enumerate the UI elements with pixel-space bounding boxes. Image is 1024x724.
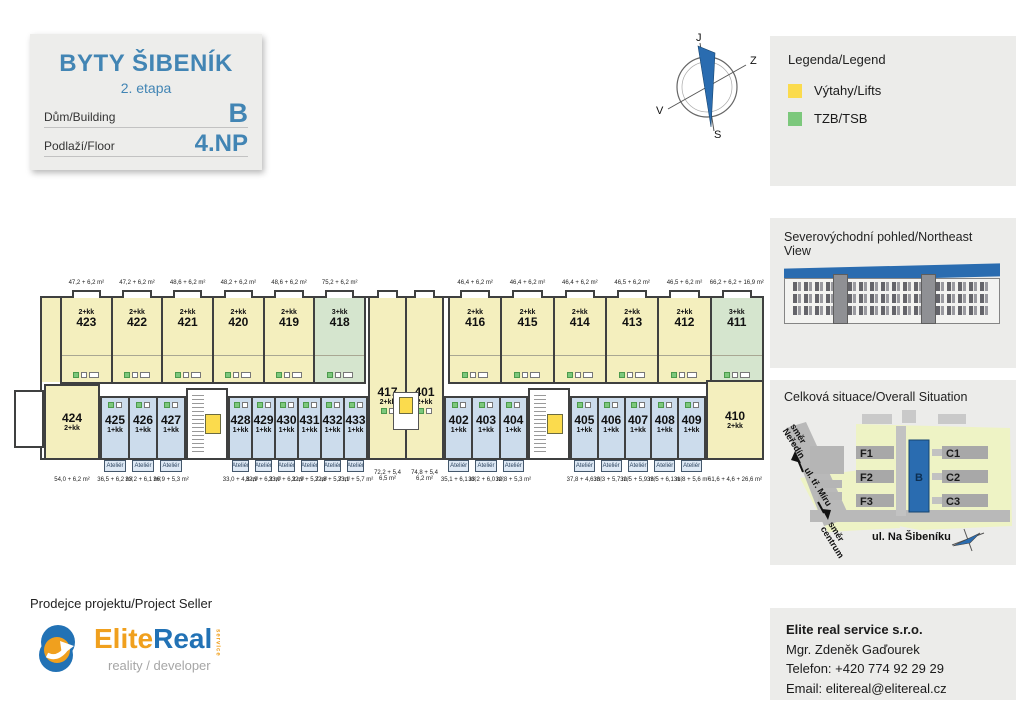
unit-number: 405 (574, 414, 594, 427)
unit-area: 74,8 + 5,46,2 m² (411, 470, 438, 482)
page-title: BYTY ŠIBENÍK (44, 50, 248, 78)
unit-414: 46,4 + 6,2 m²2+kk414 (555, 298, 607, 382)
unit-area: 75,2 + 6,2 m² (322, 280, 358, 286)
unit-fixtures (659, 372, 709, 378)
unit-area: 46,5 + 6,2 m² (614, 280, 650, 286)
stairwell-east (528, 388, 570, 460)
window-row (793, 294, 991, 303)
unit-fixtures (473, 402, 498, 408)
unit-type: 1+kk (107, 427, 123, 434)
contact-company: Elite real service s.r.o. (786, 620, 1000, 640)
unit-atelier-balcony: Ateliér (278, 460, 296, 472)
unit-405: 4051+kkAteliér37,8 + 4,6 m² (572, 398, 599, 458)
unit-413: 46,5 + 6,2 m²2+kk413 (607, 298, 659, 382)
unit-417: 4172+kk72,2 + 5,46,5 m² (370, 298, 407, 458)
contact-person: Mgr. Zdeněk Gaďourek (786, 640, 1000, 660)
stair-tower (833, 274, 848, 324)
unit-type: 1+kk (505, 427, 521, 434)
unit-type: 1+kk (302, 427, 318, 434)
unit-area: 36,9 + 5,3 m² (153, 477, 189, 483)
unit-426: 4261+kkAteliér33,2 + 6,1 m² (130, 398, 158, 458)
stairwell-west (186, 388, 228, 460)
unit-404: 4041+kkAteliér32,8 + 5,3 m² (501, 398, 526, 458)
unit-421: 48,6 + 6,2 m²2+kk421 (163, 298, 214, 382)
unit-balcony (414, 290, 435, 298)
tzb-swatch (788, 112, 802, 126)
unit-balcony (325, 290, 354, 298)
building-c2-label: C2 (946, 472, 960, 484)
unit-fixtures (163, 372, 212, 378)
unit-432: 4321+kkAteliér32,8 + 5,7 m² (322, 398, 345, 458)
unit-type: 1+kk (603, 427, 619, 434)
building-c3-label: C3 (946, 496, 960, 508)
unit-area: 54,0 + 6,2 m² (54, 477, 90, 483)
compass-icon: J Z V S (652, 30, 767, 138)
unit-number: 425 (105, 414, 125, 427)
unit-433: 4331+kkAteliér33,1 + 5,7 m² (345, 398, 366, 458)
building-f3-label: F3 (860, 496, 873, 508)
unit-atelier-balcony: Ateliér (347, 460, 365, 472)
unit-402: 4021+kkAteliér35,1 + 6,1 m² (446, 398, 473, 458)
unit-atelier-balcony: Ateliér (448, 460, 469, 472)
legend: Legenda/Legend Výtahy/Lifts TZB/TSB (770, 36, 1016, 186)
unit-411: 66,2 + 6,2 + 16,9 m²3+kk411 (712, 298, 762, 382)
compass-label-top: J (696, 32, 702, 44)
situation-panel: Celková situace/Overall Situation F1 F2 … (770, 380, 1016, 565)
lift-box (205, 414, 221, 434)
unit-type: 2+kk (64, 425, 80, 432)
unit-fixtures (652, 402, 677, 408)
unit-fixtures (501, 402, 526, 408)
unit-fixtures (446, 402, 471, 408)
unit-number: 428 (230, 414, 250, 427)
unit-atelier-balcony: Ateliér (132, 460, 154, 472)
unit-number: 414 (570, 316, 590, 329)
building-value: B (229, 100, 249, 127)
mid-stair-core (393, 392, 419, 430)
unit-number: 432 (322, 414, 342, 427)
seller-block: Prodejce projektu/Project Seller Elite R… (30, 596, 290, 706)
unit-fixtures (315, 372, 364, 378)
unit-row-bottom-a: 4251+kkAteliér36,5 + 6,2 m²4261+kkAtelié… (100, 396, 186, 460)
unit-area: 46,4 + 6,2 m² (562, 280, 598, 286)
building-b-label: B (915, 472, 923, 484)
lift-box (547, 414, 563, 434)
northeast-view-title: Severovýchodní pohled/Northeast View (784, 230, 1002, 258)
unit-area: 47,2 + 6,2 m² (69, 280, 105, 286)
unit-429: 4291+kkAteliér32,9 + 6,2 m² (253, 398, 276, 458)
unit-number: 415 (517, 316, 537, 329)
unit-fixtures (230, 402, 251, 408)
unit-409: 4091+kkAteliér31,8 + 5,6 m² (679, 398, 704, 458)
unit-area: 46,4 + 6,2 m² (510, 280, 546, 286)
stairs (192, 395, 204, 453)
unit-row-bottom-b: 4281+kkAteliér33,0 + 4,6 m²4291+kkAtelié… (228, 396, 368, 460)
unit-406: 4061+kkAteliér33,3 + 5,7 m² (599, 398, 626, 458)
unit-fixtures (253, 402, 274, 408)
title-box: BYTY ŠIBENÍK 2. etapa Dům/Building B Pod… (30, 34, 262, 170)
page-subtitle: 2. etapa (44, 80, 248, 96)
unit-area: 47,2 + 6,2 m² (119, 280, 155, 286)
unit-balcony (565, 290, 595, 298)
unit-fixtures (607, 372, 657, 378)
building-f2-label: F2 (860, 472, 873, 484)
unit-type: 1+kk (657, 427, 673, 434)
unit-area: 61,6 + 4,6 + 26,6 m² (708, 477, 762, 483)
unit-fixtures (102, 402, 128, 408)
unit-atelier-balcony: Ateliér (301, 460, 319, 472)
unit-atelier-balcony: Ateliér (601, 460, 622, 472)
unit-row-top-left: 47,2 + 6,2 m²2+kk42347,2 + 6,2 m²2+kk422… (60, 296, 366, 384)
unit-number: 420 (228, 316, 248, 329)
unit-area: 72,2 + 5,46,5 m² (374, 470, 401, 482)
unit-atelier-balcony: Ateliér (232, 460, 250, 472)
unit-fixtures (299, 402, 320, 408)
unit-row-bottom-c: 4021+kkAteliér35,1 + 6,1 m²4031+kkAtelié… (444, 396, 528, 460)
unit-fixtures (572, 402, 597, 408)
unit-balcony (669, 290, 699, 298)
unit-431: 4311+kkAteliér32,9 + 5,7 m² (299, 398, 322, 458)
unit-balcony (173, 290, 202, 298)
floor-row: Podlaží/Floor 4.NP (44, 132, 248, 157)
unit-type: 1+kk (478, 427, 494, 434)
unit-number: 402 (449, 414, 469, 427)
building-f1-label: F1 (860, 448, 873, 460)
unit-balcony (722, 290, 752, 298)
brand-real: Real (153, 625, 212, 653)
stairs (534, 395, 546, 453)
unit-number: 404 (503, 414, 523, 427)
unit-area: 66,2 + 6,2 + 16,9 m² (710, 280, 764, 286)
unit-atelier-balcony: Ateliér (654, 460, 675, 472)
unit-fixtures (679, 402, 704, 408)
unit-fixtures (130, 402, 156, 408)
unit-atelier-balcony: Ateliér (681, 460, 702, 472)
unit-430: 4301+kkAteliér33,0 + 6,2 m² (276, 398, 299, 458)
situation-map: F1 F2 F3 B C1 C2 C3 směr Neř (770, 408, 1016, 560)
unit-balcony (122, 290, 151, 298)
site-compass-icon (952, 529, 984, 551)
unit-area: 48,6 + 6,2 m² (271, 280, 307, 286)
contact-phone: Telefon: +420 774 92 29 29 (786, 659, 1000, 679)
unit-type: 2+kk (727, 423, 743, 430)
unit-area: 46,4 + 6,2 m² (457, 280, 493, 286)
unit-type: 1+kk (163, 427, 179, 434)
unit-area: 33,1 + 5,7 m² (338, 477, 374, 483)
unit-fixtures (276, 402, 297, 408)
lift-swatch (788, 84, 802, 98)
unit-number: 430 (276, 414, 296, 427)
brand-wordmark: Elite Real service (94, 625, 220, 657)
unit-408: 4081+kkAteliér33,5 + 6,1 m² (652, 398, 679, 458)
unit-418: 75,2 + 6,2 m²3+kk418 (315, 298, 364, 382)
unit-balcony (460, 290, 490, 298)
building-elevation (784, 266, 1000, 324)
unit-fixtures (712, 372, 762, 378)
unit-427: 4271+kkAteliér36,9 + 5,3 m² (158, 398, 184, 458)
unit-fixtures (502, 372, 552, 378)
elevation-facade (784, 278, 1000, 324)
unit-balcony (274, 290, 303, 298)
unit-balcony (224, 290, 253, 298)
unit-fixtures (626, 402, 651, 408)
unit-atelier-balcony: Ateliér (574, 460, 595, 472)
contact-panel: Elite real service s.r.o. Mgr. Zdeněk Ga… (770, 608, 1016, 700)
seller-label: Prodejce projektu/Project Seller (30, 596, 290, 611)
unit-atelier-balcony: Ateliér (104, 460, 126, 472)
unit-number: 403 (476, 414, 496, 427)
elitereal-logo-icon (30, 621, 86, 677)
unit-fixtures (113, 372, 162, 378)
legend-title: Legenda/Legend (788, 52, 998, 67)
unit-number: 422 (127, 316, 147, 329)
unit-atelier-balcony: Ateliér (475, 460, 496, 472)
unit-area: 48,6 + 6,2 m² (170, 280, 206, 286)
building-row: Dům/Building B (44, 100, 248, 128)
unit-type: 1+kk (279, 427, 295, 434)
unit-number: 429 (253, 414, 273, 427)
unit-area: 46,5 + 6,2 m² (667, 280, 703, 286)
unit-type: 1+kk (256, 427, 272, 434)
northeast-view-panel: Severovýchodní pohled/Northeast View (770, 218, 1016, 368)
floorplan-sheet: BYTY ŠIBENÍK 2. etapa Dům/Building B Pod… (0, 0, 1024, 724)
unit-balcony (377, 290, 398, 298)
brand-service: service (214, 629, 220, 657)
unit-number: 406 (601, 414, 621, 427)
unit-number: 427 (161, 414, 181, 427)
unit-number: 416 (465, 316, 485, 329)
compass-label-right: Z (750, 55, 757, 67)
unit-419: 48,6 + 6,2 m²2+kk419 (265, 298, 316, 382)
unit-row-top-right: 46,4 + 6,2 m²2+kk41646,4 + 6,2 m²2+kk415… (448, 296, 764, 384)
unit-416: 46,4 + 6,2 m²2+kk416 (450, 298, 502, 382)
unit-number: 431 (299, 414, 319, 427)
unit-number: 426 (133, 414, 153, 427)
unit-number: 424 (62, 412, 82, 425)
unit-number: 407 (628, 414, 648, 427)
unit-atelier-balcony: Ateliér (160, 460, 182, 472)
plan-filler-left (42, 298, 60, 382)
floor-value: 4.NP (195, 132, 248, 156)
brand-elite: Elite (94, 625, 153, 653)
unit-type: 1+kk (577, 427, 593, 434)
unit-fixtures (322, 402, 343, 408)
compass-label-bottom: S (714, 129, 721, 138)
unit-row-middle: 4172+kk72,2 + 5,46,5 m²4012+kk74,8 + 5,4… (368, 296, 444, 460)
unit-424: 424 2+kk 54,0 + 6,2 m² (44, 384, 100, 460)
unit-425: 4251+kkAteliér36,5 + 6,2 m² (102, 398, 130, 458)
unit-401: 4012+kk74,8 + 5,46,2 m² (407, 298, 442, 458)
unit-atelier-balcony: Ateliér (255, 460, 273, 472)
unit-fixtures (345, 402, 366, 408)
unit-number: 411 (727, 316, 746, 329)
legend-item-label: Výtahy/Lifts (814, 83, 881, 98)
unit-number: 413 (622, 316, 642, 329)
elitereal-logo: Elite Real service reality / developer (30, 621, 290, 677)
situation-title: Celková situace/Overall Situation (784, 390, 1016, 404)
unit-type: 1+kk (684, 427, 700, 434)
unit-atelier-balcony: Ateliér (324, 460, 342, 472)
unit-type: 1+kk (325, 427, 341, 434)
unit-428: 4281+kkAteliér33,0 + 4,6 m² (230, 398, 253, 458)
unit-415: 46,4 + 6,2 m²2+kk415 (502, 298, 554, 382)
unit-balcony (72, 290, 101, 298)
legend-item-label: TZB/TSB (814, 111, 867, 126)
unit-number: 421 (178, 316, 198, 329)
unit-type: 1+kk (630, 427, 646, 434)
unit-420: 48,2 + 6,2 m²2+kk420 (214, 298, 265, 382)
unit-410: 410 2+kk 61,6 + 4,6 + 26,6 m² (706, 380, 764, 460)
unit-number: 433 (345, 414, 365, 427)
unit-area: 48,2 + 6,2 m² (221, 280, 257, 286)
legend-item-tzb: TZB/TSB (788, 111, 998, 126)
unit-fixtures (158, 402, 184, 408)
unit-412: 46,5 + 6,2 m²2+kk412 (659, 298, 711, 382)
unit-fixtures (599, 402, 624, 408)
unit-424-balcony (14, 390, 44, 448)
floor-label: Podlaží/Floor (44, 139, 115, 156)
unit-fixtures (214, 372, 263, 378)
building-c1-label: C1 (946, 448, 960, 460)
unit-area: 32,8 + 5,3 m² (496, 477, 532, 483)
unit-atelier-balcony: Ateliér (503, 460, 524, 472)
street-sibeniku-label: ul. Na Šibeníku (872, 530, 951, 543)
unit-number: 423 (76, 316, 96, 329)
lift-box (399, 397, 413, 414)
unit-area: 31,8 + 5,6 m² (674, 477, 710, 483)
legend-item-lifts: Výtahy/Lifts (788, 83, 998, 98)
compass-label-left: V (656, 105, 664, 117)
unit-423: 47,2 + 6,2 m²2+kk423 (62, 298, 113, 382)
unit-fixtures (450, 372, 500, 378)
unit-number: 412 (674, 316, 694, 329)
unit-row-bottom-d: 4051+kkAteliér37,8 + 4,6 m²4061+kkAtelié… (570, 396, 706, 460)
unit-type: 1+kk (348, 427, 364, 434)
unit-number: 409 (682, 414, 702, 427)
unit-fixtures (555, 372, 605, 378)
unit-type: 1+kk (451, 427, 467, 434)
building-label: Dům/Building (44, 110, 115, 127)
brand-tagline: reality / developer (94, 658, 220, 673)
unit-number: 419 (279, 316, 299, 329)
unit-atelier-balcony: Ateliér (628, 460, 649, 472)
stair-tower (921, 274, 936, 324)
contact-email: Email: elitereal@elitereal.cz (786, 679, 1000, 699)
unit-fixtures (265, 372, 314, 378)
unit-type: 1+kk (233, 427, 249, 434)
unit-422: 47,2 + 6,2 m²2+kk422 (113, 298, 164, 382)
unit-balcony (617, 290, 647, 298)
window-row (793, 306, 991, 315)
window-row (793, 282, 991, 291)
unit-407: 4071+kkAteliér32,5 + 5,9 m² (626, 398, 653, 458)
unit-number: 410 (725, 410, 745, 423)
unit-balcony (512, 290, 542, 298)
unit-fixtures (62, 372, 111, 378)
unit-type: 1+kk (135, 427, 151, 434)
unit-403: 4031+kkAteliér33,2 + 6,0 m² (473, 398, 500, 458)
unit-number: 418 (330, 316, 350, 329)
unit-number: 408 (655, 414, 675, 427)
